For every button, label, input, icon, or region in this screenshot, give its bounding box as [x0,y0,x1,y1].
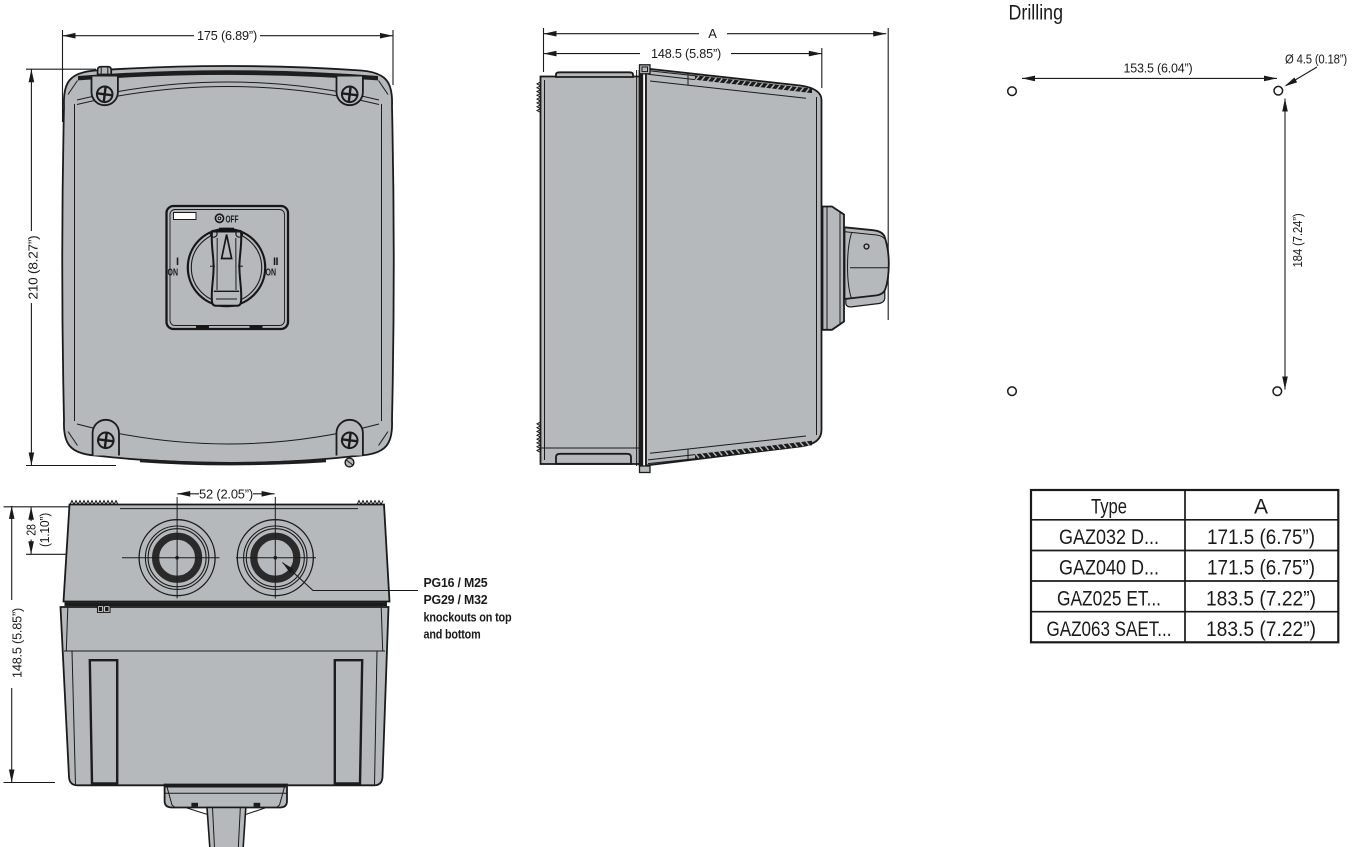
svg-text:(1.10”): (1.10”) [37,513,52,547]
svg-text:52 (2.05”): 52 (2.05”) [199,486,253,501]
svg-text:Ø 4.5 (0.18”): Ø 4.5 (0.18”) [1285,52,1347,67]
svg-text:GAZ040 D...: GAZ040 D... [1059,557,1159,580]
svg-text:A: A [708,26,717,41]
svg-text:148.5 (5.85”): 148.5 (5.85”) [651,46,721,61]
svg-text:GAZ063 SAET...: GAZ063 SAET... [1047,618,1172,641]
svg-text:183.5 (7.22”): 183.5 (7.22”) [1206,587,1316,610]
svg-text:Type: Type [1091,495,1127,518]
svg-text:GAZ025 ET...: GAZ025 ET... [1057,587,1161,610]
svg-text:ON: ON [168,268,179,279]
svg-text:153.5 (6.04”): 153.5 (6.04”) [1124,61,1193,76]
svg-text:210 (8.27”): 210 (8.27”) [26,236,41,300]
svg-text:and bottom: and bottom [424,627,481,642]
svg-text:GAZ032 D...: GAZ032 D... [1059,526,1159,549]
svg-text:ON: ON [266,268,277,279]
svg-text:A: A [1254,495,1268,518]
svg-text:184 (7.24”): 184 (7.24”) [1290,214,1305,268]
svg-text:II: II [273,256,279,268]
svg-text:PG16 / M25: PG16 / M25 [424,575,488,590]
svg-text:171.5 (6.75”): 171.5 (6.75”) [1207,557,1315,580]
svg-text:175 (6.89”): 175 (6.89”) [197,28,257,43]
svg-text:183.5 (7.22”): 183.5 (7.22”) [1206,618,1316,641]
svg-text:148.5 (5.85”): 148.5 (5.85”) [10,608,25,678]
svg-text:PG29 / M32: PG29 / M32 [424,592,488,607]
svg-text:OFF: OFF [226,214,239,226]
svg-text:Drilling: Drilling [1009,0,1064,24]
svg-text:171.5 (6.75”): 171.5 (6.75”) [1207,526,1315,549]
svg-text:I: I [176,256,179,268]
svg-text:knockouts on top: knockouts on top [424,609,512,624]
